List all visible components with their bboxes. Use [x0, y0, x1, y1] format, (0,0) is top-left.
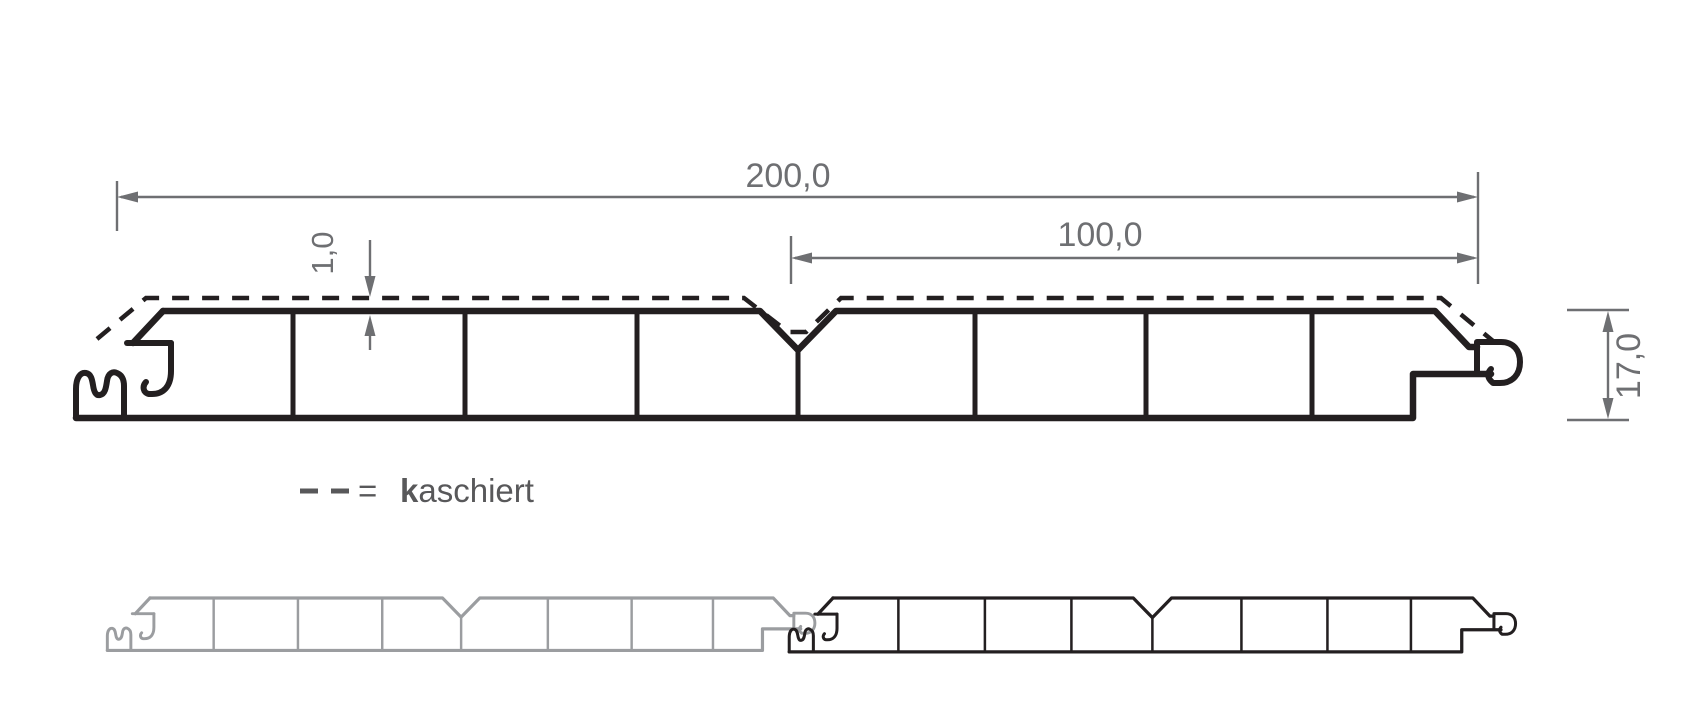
legend-label-bold: k: [400, 472, 419, 509]
arrowhead-up: [1603, 311, 1614, 332]
arrowhead-right: [1457, 253, 1478, 264]
drawing-canvas: 200,0 100,0 1,0 17,0 = kaschiert: [0, 0, 1692, 722]
label-panel-thickness: 17,0: [1610, 333, 1648, 399]
profile-technical-drawing: 200,0 100,0 1,0 17,0 = kaschiert: [0, 0, 1692, 722]
assembled-panel-right-black: [789, 598, 1515, 652]
arrowhead-left: [117, 192, 138, 203]
legend: = kaschiert: [300, 472, 534, 509]
legend-label-rest: aschiert: [418, 472, 534, 509]
arrowhead-right: [1457, 192, 1478, 203]
dimension-half-width: [791, 253, 1478, 264]
label-lamination-thickness: 1,0: [305, 231, 340, 274]
label-half-width: 100,0: [1057, 216, 1142, 254]
legend-label: kaschiert: [400, 472, 534, 509]
arrowhead-down: [365, 276, 376, 297]
legend-equals: =: [358, 472, 377, 509]
arrowhead-left: [791, 253, 812, 264]
dimension-lamination: [365, 240, 376, 350]
kaschiert-dashed-line: [97, 298, 1493, 341]
arrowhead-up: [365, 315, 376, 336]
main-panel-profile: [76, 311, 1520, 418]
arrowhead-down: [1603, 398, 1614, 419]
assembled-panel-left-gray: [107, 598, 815, 650]
label-total-width: 200,0: [745, 157, 830, 195]
